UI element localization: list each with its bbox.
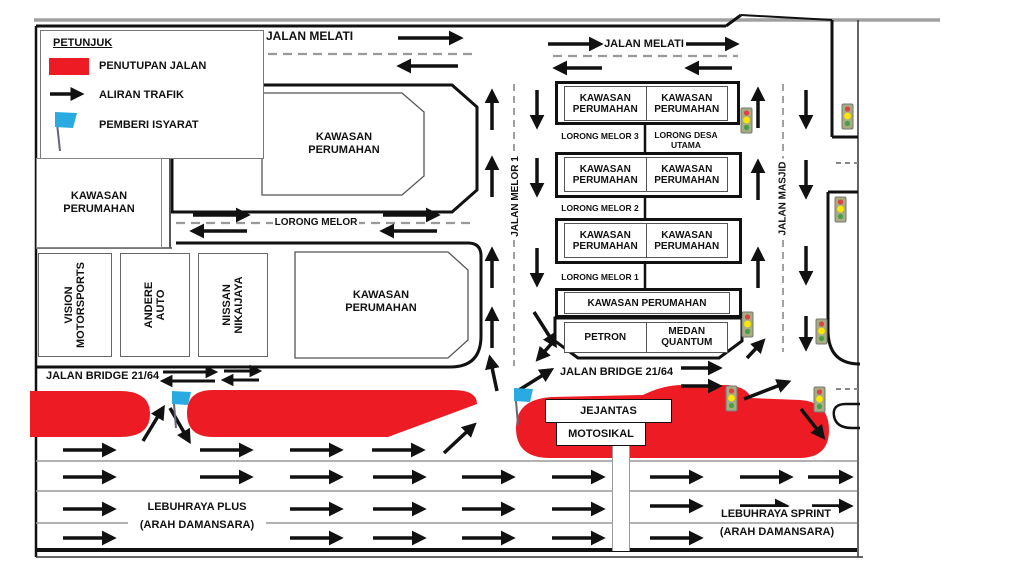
road-label-jalan-melati-left: JALAN MELATI (266, 30, 353, 44)
jejantas-box: JEJANTAS (545, 399, 672, 423)
business-nissan-nikaijaya: NISSAN NIKAIJAYA (198, 253, 268, 357)
legend-item-signal: PEMBERI ISYARAT (99, 119, 199, 132)
legend-box: PETUNJUK PENUTUPAN JALAN ALIRAN TRAFIK P… (40, 30, 264, 159)
housing-area-centre: KAWASAN PERUMAHAN (322, 280, 440, 324)
housing-block-d-cell: KAWASAN PERUMAHAN (564, 292, 730, 314)
flyover-pillar (612, 446, 630, 551)
highway-label-lebuhraya-plus: LEBUHRAYA PLUS (136, 500, 258, 515)
road-label-jalan-melati-right: JALAN MELATI (602, 36, 686, 52)
petron-label: PETRON (565, 323, 647, 352)
business-vision-motorsports: VISION MOTORSPORTS (38, 253, 112, 357)
medan-quantum-label: MEDAN QUANTUM (647, 323, 728, 352)
housing-area-top-centre: KAWASAN PERUMAHAN (283, 121, 405, 167)
traffic-light-icon (741, 108, 752, 133)
business-andere-auto: ANDERE AUTO (120, 253, 190, 357)
housing-area-label: KAWASAN PERUMAHAN (565, 298, 729, 309)
legend-item-flow: ALIRAN TRAFIK (99, 89, 184, 102)
road-label-lorong-melor-3: LORONG MELOR 3 (556, 130, 644, 144)
housing-block-b-cells: KAWASAN PERUMAHAN KAWASAN PERUMAHAN (564, 157, 728, 192)
housing-area-label: KAWASAN PERUMAHAN (647, 87, 728, 120)
signal-flag-icon (51, 111, 81, 153)
housing-area-label: KAWASAN PERUMAHAN (647, 158, 728, 191)
housing-area-left: KAWASAN PERUMAHAN (36, 158, 162, 248)
traffic-light-icon (835, 197, 846, 222)
business-label: ANDERE AUTO (143, 271, 167, 339)
traffic-light-icon (726, 386, 737, 411)
road-label-jalan-melor-1: JALAN MELOR 1 (499, 152, 531, 240)
road-label-lorong-melor-2: LORONG MELOR 2 (556, 202, 644, 216)
petron-quantum-cells: PETRON MEDAN QUANTUM (564, 322, 728, 353)
highway-label-lebuhraya-sprint: LEBUHRAYA SPRINT (714, 507, 838, 522)
housing-area-label: KAWASAN PERUMAHAN (647, 224, 728, 257)
road-closure-swatch-icon (49, 58, 89, 75)
road-label-lorong-melor-1: LORONG MELOR 1 (556, 271, 644, 285)
traffic-light-icon (814, 387, 825, 412)
housing-block-c-cells: KAWASAN PERUMAHAN KAWASAN PERUMAHAN (564, 223, 728, 258)
closure-middle (187, 390, 477, 437)
road-label-lorong-desa-utama: LORONG DESA UTAMA (650, 127, 722, 154)
traffic-plan-diagram: PETUNJUK PENUTUPAN JALAN ALIRAN TRAFIK P… (0, 0, 1024, 576)
housing-area-label: KAWASAN PERUMAHAN (565, 158, 647, 191)
traffic-light-icon (816, 319, 827, 344)
road-label-jalan-masjid: JALAN MASJID (767, 152, 799, 244)
housing-area-label: KAWASAN PERUMAHAN (304, 131, 384, 156)
housing-area-label: KAWASAN PERUMAHAN (341, 289, 421, 314)
road-label-lorong-melor: LORONG MELOR (273, 215, 359, 230)
housing-area-label: KAWASAN PERUMAHAN (565, 224, 647, 257)
housing-block-a-cells: KAWASAN PERUMAHAN KAWASAN PERUMAHAN (564, 86, 728, 121)
legend-item-closure: PENUTUPAN JALAN (99, 60, 206, 73)
business-label: NISSAN NIKAIJAYA (221, 271, 245, 339)
legend-title: PETUNJUK (53, 37, 112, 50)
closure-left (30, 391, 150, 437)
housing-area-label: KAWASAN PERUMAHAN (54, 190, 144, 215)
road-label-jalan-bridge-left: JALAN BRIDGE 21/64 (46, 370, 159, 383)
traffic-light-icon (842, 104, 853, 129)
road-label-jalan-bridge-centre: JALAN BRIDGE 21/64 (560, 366, 673, 379)
highway-label-plus-direction: (ARAH DAMANSARA) (128, 517, 266, 534)
highway-label-sprint-direction: (ARAH DAMANSARA) (708, 524, 846, 541)
motosikal-box: MOTOSIKAL (556, 422, 646, 446)
housing-area-label: KAWASAN PERUMAHAN (565, 87, 647, 120)
road-closure-shapes (30, 385, 829, 458)
traffic-flow-arrow-icon (47, 87, 93, 101)
business-label: VISION MOTORSPORTS (63, 262, 87, 348)
traffic-light-icon (742, 312, 753, 337)
